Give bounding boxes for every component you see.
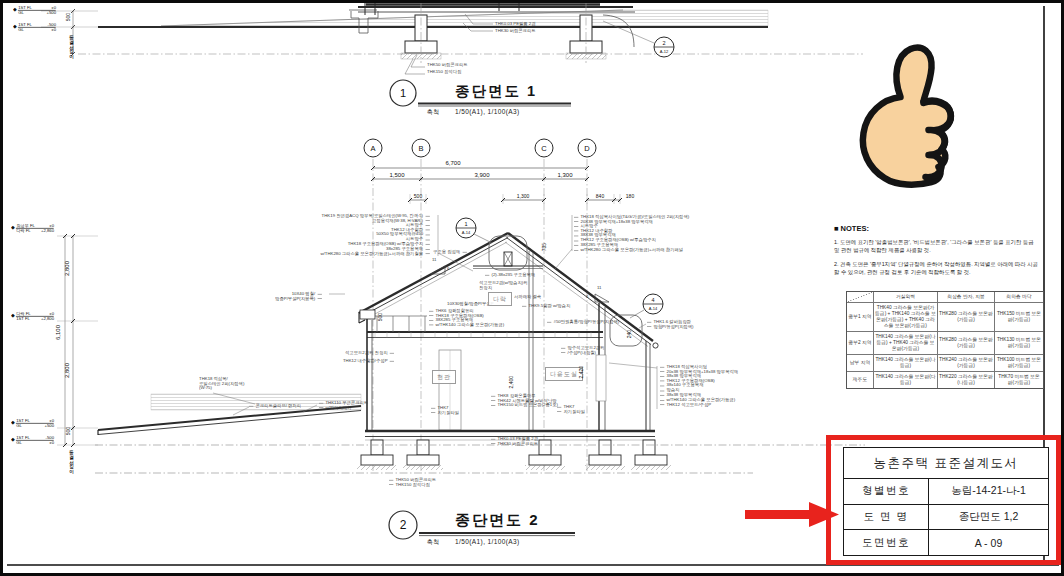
red-arrow bbox=[745, 502, 839, 527]
dim-left-gl: 500 bbox=[65, 427, 71, 435]
ridge-detail-bubble-number: 1 bbox=[464, 221, 467, 227]
dim-span-cd: 1,300 bbox=[557, 172, 572, 178]
title-block-row-label: 형별번호 bbox=[844, 479, 929, 504]
flat-bar-label: 10X40 평철/ 방충P/무설P(지붕쪽) bbox=[275, 291, 322, 300]
cell-roof: THK280 그라스울 보온판(가등급) bbox=[938, 332, 995, 355]
level-marker: ◆ 1ST FL±0 GL+500 bbox=[11, 418, 54, 429]
dim-small-500: 500 bbox=[414, 193, 422, 199]
cell-wall: THK140 그라스울 보온판(나등급) + THK40 그라스울 보온판(가등… bbox=[874, 332, 938, 355]
section2-scale-label: 축척 bbox=[427, 538, 439, 547]
table-row: 제주도 THK140 그라스울 보온판(다등급) THK220 그라스울 보온판… bbox=[847, 372, 1043, 388]
section1-scale-label: 축척 bbox=[427, 108, 439, 117]
ridge-ceiling-label: 석고보드2겹(w/방습지)위 천장지 bbox=[479, 280, 527, 289]
deck-label: THK18 적삼목/오일스테인 2회(지정색)(W:75) bbox=[199, 376, 244, 390]
drawing-sheet: ◆ 1ST FL±0 GL+500 ◆ 1ST FL-500 GL±0 500 … bbox=[0, 0, 1064, 576]
cell-wall: THK40 그라스울 보온판(가등급) + THK140 그라스울 보온판(가등… bbox=[874, 303, 938, 332]
waterproof-gypsum-label: 방수석고보드2겹위 /수성P(내장칠) bbox=[561, 345, 604, 354]
lean-concrete50-label: THK50 버림콘크리트 bbox=[427, 62, 468, 67]
title-block-row-value: A - 09 bbox=[929, 530, 1048, 555]
dim-small-840: 840 bbox=[596, 193, 604, 199]
annotation-line: THK12 석고보드/수성P bbox=[660, 402, 738, 407]
title-block-row-value: 종단면도 1,2 bbox=[929, 505, 1048, 530]
under-slab-labels: THK0.03 PE필름 2겹THK30 버림콘크리트 bbox=[491, 436, 538, 445]
gutter-label: #50반원홈통/방청P/유성P(지정색) bbox=[547, 319, 619, 324]
roof-left-annotations: THK19 천연경ACQ 방부목/오일스테인(W:95, 간격:5)고정용각재(… bbox=[321, 213, 430, 256]
title-block-row-label: 도 면 명 bbox=[844, 505, 929, 530]
section2-scale-value: 1/50(A1), 1/100(A3) bbox=[455, 538, 520, 545]
cell-floor: THK130 비드법 보온판(가등급) bbox=[995, 332, 1043, 355]
table-row: 중부2 지역 THK140 그라스울 보온판(나등급) + THK40 그라스울… bbox=[847, 332, 1043, 355]
dim-hall: 2,400 bbox=[508, 376, 514, 389]
dim-left-upper: 2,800 bbox=[64, 261, 70, 276]
frost-depth-dim: 500 bbox=[65, 13, 71, 21]
section1-title: 종단면도 1 bbox=[455, 82, 537, 101]
cell-region: 남부 지역 bbox=[847, 355, 874, 372]
cell-wall: THK140 그라스울 보온판(다등급) bbox=[874, 372, 938, 388]
dim-span-ab: 1,500 bbox=[389, 172, 404, 178]
annotation-line: w/THK280 그라스울 보온판(가등급)+서까래 환기철물 bbox=[321, 251, 430, 256]
insulation-table: 거실외벽 최상층 반자, 지붕 최하층 바닥 중부1 지역 THK40 그라스울… bbox=[846, 291, 1044, 389]
slope-rise-left: 6 bbox=[447, 266, 449, 271]
header-cell-roof: 최상층 반자, 지붕 bbox=[938, 292, 995, 303]
dim-left-lower: 2,800 bbox=[64, 363, 70, 378]
level-marker: ◆ 1ST FL±0 GL+500 bbox=[13, 5, 56, 16]
cell-wall: THK140 그라스울 보온판(나등급) bbox=[874, 355, 938, 372]
frost-line-text2: 동결선깊이 bbox=[69, 447, 74, 470]
table-row: 중부1 지역 THK40 그라스울 보온판(가등급) + THK140 그라스울… bbox=[847, 303, 1043, 332]
slope-run-left: 11 bbox=[432, 257, 436, 262]
title-block-title: 농촌주택 표준설계도서 bbox=[844, 448, 1048, 479]
ridge-detail-bubble-sheet: A-14 bbox=[462, 230, 470, 235]
level-symbol: ◆ bbox=[11, 436, 15, 445]
floor-buildup-labels: THK8 강화온돌마루THK42 시멘트몰탈 w/바닥난방THK150 비드법 … bbox=[491, 393, 558, 407]
tile-label-entrance: THK7 자기질타일 bbox=[431, 405, 459, 414]
annotation-line: THK30 버림콘크리트 bbox=[491, 441, 538, 446]
title-block: 농촌주택 표준설계도서 형별번호 농림-14-21-나-1 도 면 명 종단면도… bbox=[843, 447, 1049, 556]
table-row: 남부 지역 THK140 그라스울 보온판(나등급) THK240 그라스울 보… bbox=[847, 355, 1043, 372]
level-symbol: ◆ bbox=[13, 6, 17, 15]
title-block-row-label: 도면번호 bbox=[844, 530, 929, 555]
section1-scale-value: 1/50(A1), 1/100(A3) bbox=[455, 108, 520, 115]
cell-region: 중부1 지역 bbox=[847, 303, 874, 332]
insulation-table-header: 거실외벽 최상층 반자, 지붕 최하층 바닥 bbox=[847, 292, 1043, 303]
annotation-line: (W:75) bbox=[199, 385, 244, 390]
section2-title: 종단면도 2 bbox=[455, 511, 540, 530]
dim-left-overall: 6,100 bbox=[55, 325, 61, 340]
detail-bubble-number: 2 bbox=[662, 40, 665, 46]
rafter-tie-label: 서까래와 결속 bbox=[514, 294, 541, 299]
frost-line-text: 동결선깊이 bbox=[69, 32, 74, 55]
plain-concrete-label: THK110 무근콘크리트 w/와이어메쉬 bbox=[319, 400, 368, 409]
slope-rise-right: 6 bbox=[586, 294, 588, 299]
cell-roof: THK220 그라스울 보온판(나등급) bbox=[938, 372, 995, 388]
title-block-rows: 형별번호 농림-14-21-나-1 도 면 명 종단면도 1,2 도면번호 A … bbox=[844, 479, 1048, 555]
level-marker: ◆ 다락 FL±0 1ST FL+2,800 bbox=[11, 311, 54, 322]
notes-item: 2. 건축 도면은 '중부1지역' 단열규정에 준하여 작성하였음. 지역별로 … bbox=[834, 260, 1039, 277]
cell-roof: THK240 그라스울 보온판(가등급) bbox=[938, 355, 995, 372]
left-wall-label-1: 석고보드2겹위 천장지 bbox=[345, 350, 394, 355]
dim-small-1300: 1,300 bbox=[517, 193, 530, 199]
cell-floor: THK100 비드법 보온판(가등급) bbox=[995, 355, 1043, 372]
notes-items: 1. 도면에 표기한 '압출법보온판', '비드법보온판', '그라스울 보온판… bbox=[834, 238, 1039, 277]
dim-clerestory: 500 bbox=[377, 313, 383, 321]
tile-label-utility: THK7 자기질타일 bbox=[557, 404, 585, 413]
annotation-line: w/THK140 그라스울 보온판(가등급) bbox=[429, 322, 504, 327]
thumbs-up-sticker bbox=[823, 41, 978, 191]
dim-ridge: 735 bbox=[541, 243, 547, 251]
room-label-entrance: 현관 bbox=[432, 370, 456, 384]
plywood-label: THK9.5합판 w/방습지 bbox=[522, 303, 570, 308]
roof-right-annotations: THK18 적삼목사이딩(T&G/가공)/오일스테인 2회(지정색)20X38 … bbox=[574, 214, 689, 252]
grid-bubble-a: A bbox=[370, 144, 375, 153]
room-label-attic: 다락 bbox=[488, 292, 512, 306]
level-symbol: ◆ bbox=[13, 23, 17, 32]
detail-bubble-sheet: A-12 bbox=[660, 49, 668, 54]
level-marker: ◆ 1ST FL-500 GL±0 bbox=[11, 435, 54, 446]
annotation-line: THK150 비드법 보온판(2종1호) bbox=[491, 402, 558, 407]
pe-film-label: THK0.03 PE필름 2겹 bbox=[495, 21, 536, 26]
dim-small-180: 180 bbox=[626, 193, 634, 199]
level-symbol: ◆ bbox=[11, 312, 15, 321]
header-cell-floor: 최하층 바닥 bbox=[995, 292, 1043, 303]
dim-utility: 2,420 bbox=[578, 366, 584, 379]
insulation-table-body: 중부1 지역 THK40 그라스울 보온판(가등급) + THK140 그라스울… bbox=[847, 303, 1043, 388]
grid-bubble-d: D bbox=[584, 144, 589, 153]
eave-detail-bubble-sheet: A-14 bbox=[649, 306, 657, 311]
title-block-row: 형별번호 농림-14-21-나-1 bbox=[844, 479, 1048, 505]
annotation-line: THK150 잡석다짐 bbox=[389, 482, 436, 487]
grid-bubble-b: B bbox=[418, 144, 423, 153]
galvalume-label: THK1.6 갈바늄강판 방청P/유성P(지정색) bbox=[647, 319, 694, 328]
cell-region: 제주도 bbox=[847, 372, 874, 388]
level-marker: ◆ 1ST FL-500 GL±0 bbox=[13, 22, 56, 33]
notes-item: 1. 도면에 표기한 '압출법보온판', '비드법보온판', '그라스울 보온판… bbox=[834, 238, 1039, 255]
notes-heading: ■ NOTES: bbox=[834, 224, 1039, 233]
glulam-label: 구조용 집성재 bbox=[433, 249, 467, 254]
cell-floor: THK70 비드법 보온판(가등급) bbox=[995, 372, 1043, 388]
section1-number-bubble: 1 bbox=[400, 87, 406, 99]
level-symbol: ◆ bbox=[11, 224, 15, 233]
gravel-label: THK150 잡석다짐 bbox=[427, 69, 461, 74]
eave-detail-bubble-number: 4 bbox=[651, 297, 654, 303]
level-symbol: ◆ bbox=[11, 419, 15, 428]
footing-labels: THK50 버림콘크리트THK150 잡석다짐 bbox=[389, 477, 436, 486]
lean-concrete-label: THK30 버림콘크리트 bbox=[495, 28, 536, 33]
title-block-row-value: 농림-14-21-나-1 bbox=[929, 479, 1048, 504]
cell-region: 중부2 지역 bbox=[847, 332, 874, 355]
title-block-row: 도 면 명 종단면도 1,2 bbox=[844, 505, 1048, 531]
notes-panel: ■ NOTES: 1. 도면에 표기한 '압출법보온판', '비드법보온판', … bbox=[834, 224, 1039, 277]
grid-bubble-c: C bbox=[541, 144, 546, 153]
slab-finish-label: 콘크리트슬라브/ 면처리 bbox=[249, 403, 301, 408]
title-block-row: 도면번호 A - 09 bbox=[844, 530, 1048, 555]
flat-bar30-label: 10X30평철/방충P/무설P bbox=[447, 301, 494, 306]
header-cell-blank bbox=[847, 292, 874, 303]
left-wall-label-2: THK12 내수합판/수성P bbox=[343, 358, 394, 363]
slope-run-right: 11 bbox=[597, 285, 601, 290]
dim-total: 6,700 bbox=[445, 160, 460, 166]
cell-floor: THK150 비드법 보온판(가등급) bbox=[995, 303, 1043, 332]
entrance-canopy-labels: THK6 강화접합유리THK18 구조용판재(OSB)38X285 구조용목재w… bbox=[429, 308, 504, 327]
cell-roof: THK280 그라스울 보온판(가등급) bbox=[938, 303, 995, 332]
rafter-label: (2)-38x235 구조용목재 bbox=[485, 272, 535, 277]
wall-right-annotations: THK18 적삼목사이딩20x38 방부목각재+18x38 방부목각재38x38… bbox=[660, 364, 738, 407]
dim-span-bc: 3,900 bbox=[474, 172, 489, 178]
section2-number-bubble: 2 bbox=[400, 518, 407, 532]
header-cell-wall: 거실외벽 bbox=[874, 292, 938, 303]
level-marker: ◆ 최상부 FL±0 다락 FL+2,860 bbox=[11, 223, 54, 234]
annotation-line: w/THK280 그라스울 보온판(가등급)+서까래 환기패널 bbox=[574, 247, 689, 252]
dim-eave: 240 bbox=[626, 330, 632, 338]
